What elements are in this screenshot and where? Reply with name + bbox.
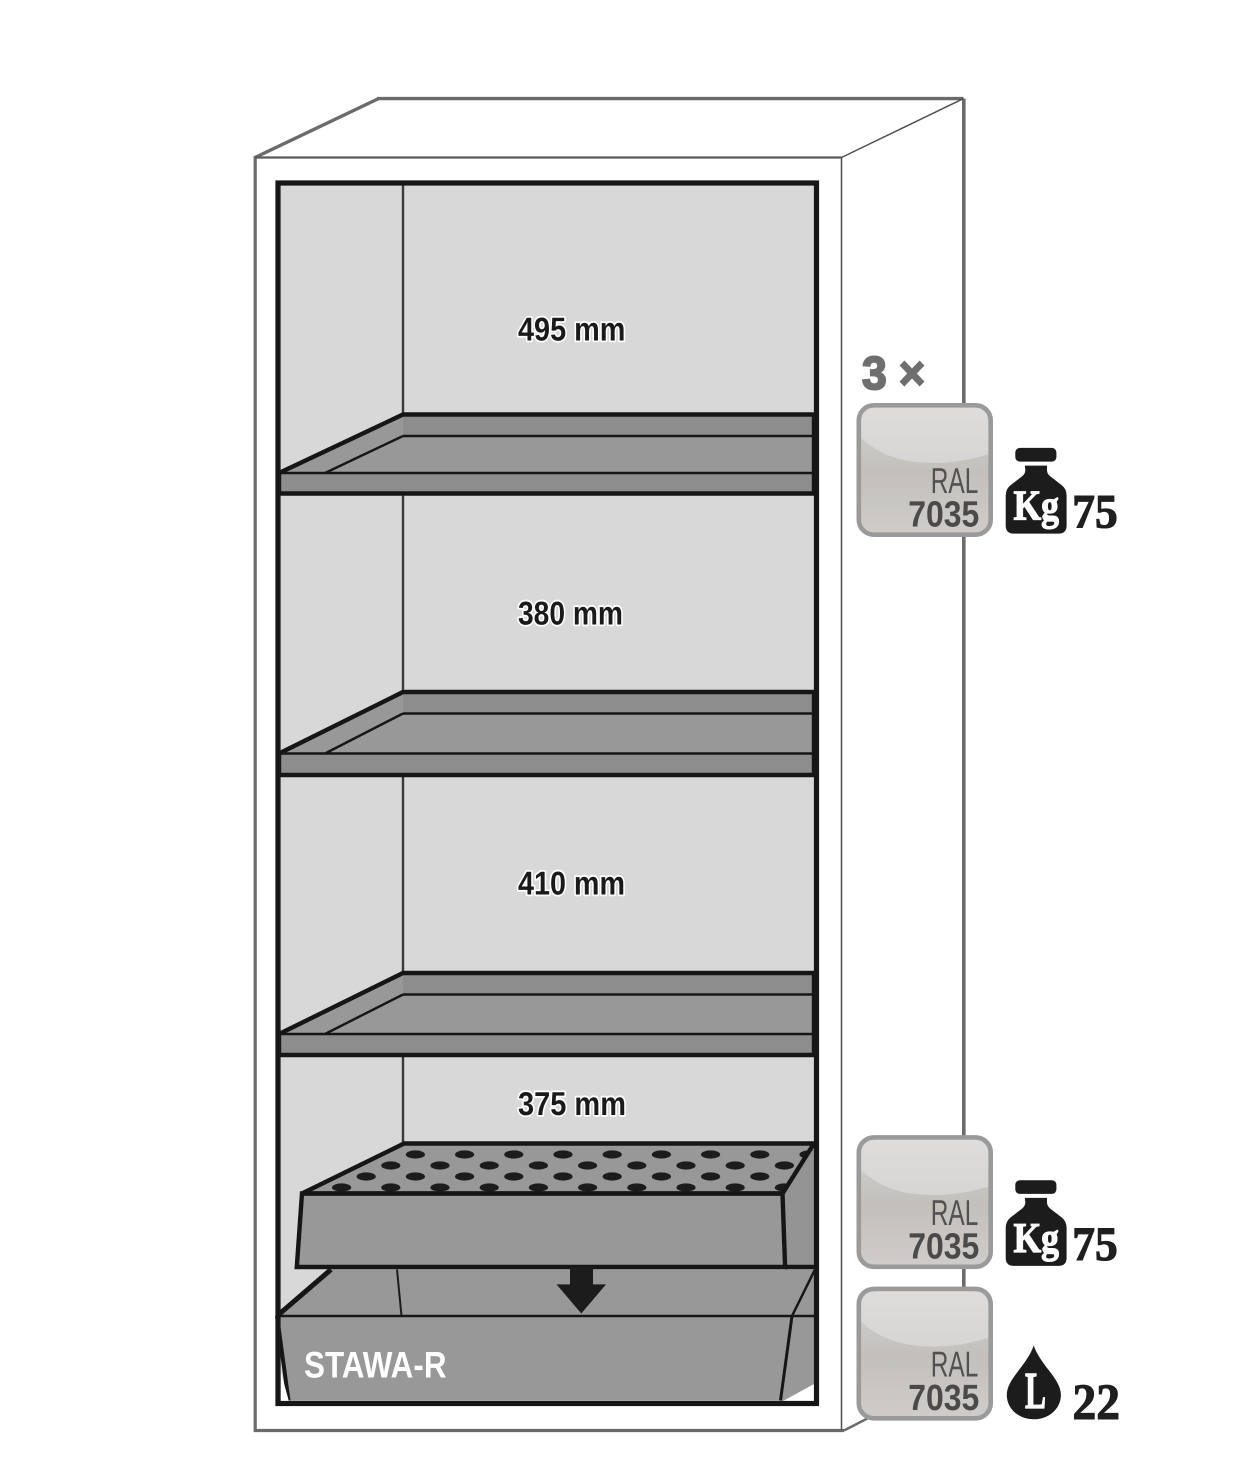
svg-text:Kg: Kg <box>1013 483 1059 530</box>
svg-text:75: 75 <box>1072 486 1118 539</box>
svg-text:3 ×: 3 × <box>862 347 925 399</box>
svg-text:L: L <box>1025 1363 1046 1420</box>
svg-text:STAWA-R: STAWA-R <box>304 1345 447 1386</box>
svg-text:75: 75 <box>1072 1218 1118 1271</box>
svg-text:375 mm: 375 mm <box>518 1085 626 1122</box>
svg-text:7035: 7035 <box>908 1225 979 1266</box>
svg-text:7035: 7035 <box>908 493 979 534</box>
svg-text:380 mm: 380 mm <box>518 595 623 632</box>
svg-text:Kg: Kg <box>1013 1215 1059 1262</box>
svg-text:7035: 7035 <box>908 1377 979 1418</box>
svg-text:495 mm: 495 mm <box>518 311 625 348</box>
svg-text:410 mm: 410 mm <box>518 865 625 902</box>
svg-text:22: 22 <box>1073 1375 1121 1431</box>
